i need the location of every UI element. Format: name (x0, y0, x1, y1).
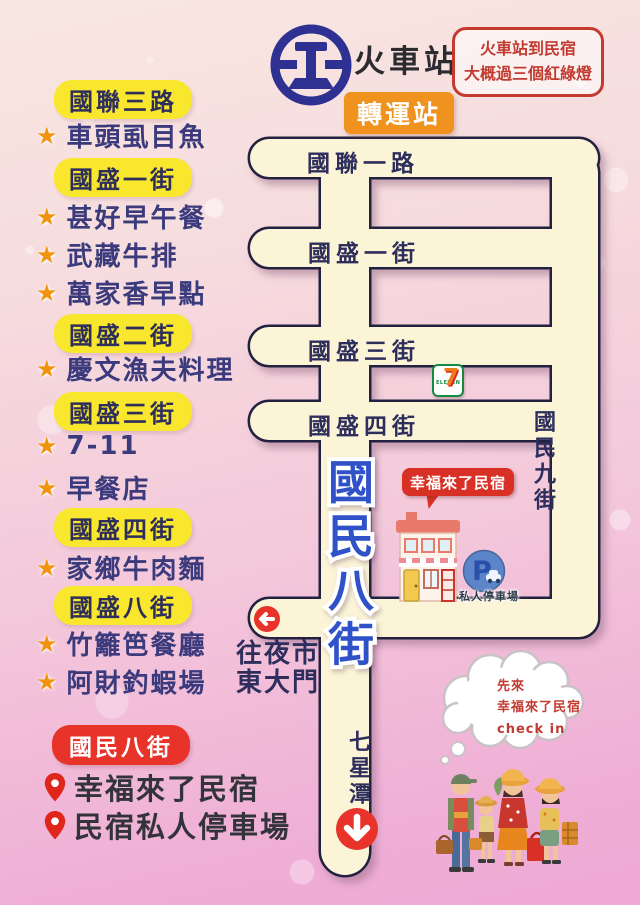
night-market-note: 往夜市 東大門 (236, 640, 320, 697)
destination-item: 民宿私人停車場 (44, 804, 291, 846)
list-item: ★甚好早午餐 (36, 198, 207, 235)
list-item: ★萬家香早點 (36, 274, 207, 311)
star-icon: ★ (36, 279, 58, 307)
guesthouse-callout: 幸福來了民宿 (402, 468, 514, 496)
railway-logo (266, 20, 356, 110)
street-badge: 國盛二街 (54, 314, 192, 353)
family-illustration (428, 742, 588, 892)
list-item: ★竹籬笆餐廳 (36, 625, 207, 662)
guesthouse-building (396, 512, 460, 604)
thought-bubble-text: 先來 幸福來了民宿 check in (497, 676, 581, 740)
list-item: ★車頭虱目魚 (36, 117, 207, 154)
list-item: ★7-11 (36, 431, 140, 461)
transfer-station-badge: 轉運站 (344, 92, 454, 134)
star-icon: ★ (36, 355, 58, 383)
street-badge: 國盛四街 (54, 508, 192, 547)
list-item: ★阿財釣蝦場 (36, 663, 207, 700)
left-arrow-icon (253, 605, 281, 633)
list-item: ★武藏牛排 (36, 236, 179, 273)
street-badge: 國盛八街 (54, 586, 192, 625)
road-label: 國聯一路 (307, 144, 419, 178)
star-icon: ★ (36, 668, 58, 696)
star-icon: ★ (36, 203, 58, 231)
parking-label: 私人停車場 (459, 588, 519, 604)
street-badge: 國聯三路 (54, 80, 192, 119)
direction-map-poster: 火車站 火車站到民宿 大概過三個紅綠燈 轉運站 國聯三路 ★車頭虱目魚 國盛一街… (0, 0, 640, 905)
destination-street-badge: 國民八街 (52, 725, 190, 765)
location-pin-icon (44, 811, 66, 840)
star-icon: ★ (36, 122, 58, 150)
main-road-label: 國民八街 國民八街 (315, 458, 375, 688)
destination-item: 幸福來了民宿 (44, 766, 260, 808)
station-title: 火車站 (354, 36, 459, 81)
route-note-line2: 大概過三個紅綠燈 (459, 62, 597, 87)
list-item: ★家鄉牛肉麵 (36, 549, 207, 586)
list-item: ★早餐店 (36, 469, 151, 506)
route-note-line1: 火車站到民宿 (459, 37, 597, 62)
route-note: 火車站到民宿 大概過三個紅綠燈 (452, 27, 604, 97)
street-badge: 國盛一街 (54, 158, 192, 197)
seven-eleven-icon: ELEVEN 7 (432, 364, 464, 397)
star-icon: ★ (36, 432, 58, 460)
star-icon: ★ (36, 630, 58, 658)
down-arrow-icon (335, 807, 379, 851)
star-icon: ★ (36, 474, 58, 502)
street-badge: 國盛三街 (54, 392, 192, 431)
road-label: 國盛三街 (308, 332, 420, 366)
qixingtan-label: 七星潭 (341, 730, 373, 808)
road-label-vertical: 國民九街 (526, 410, 558, 514)
destination-label: 幸福來了民宿 (74, 766, 260, 808)
destination-label: 民宿私人停車場 (74, 804, 291, 846)
road-label: 國盛四街 (308, 407, 420, 441)
star-icon: ★ (36, 554, 58, 582)
list-item: ★慶文漁夫料理 (36, 350, 235, 387)
parking-icon: P (462, 549, 506, 593)
star-icon: ★ (36, 241, 58, 269)
location-pin-icon (44, 773, 66, 802)
road-label: 國盛一街 (308, 234, 420, 268)
